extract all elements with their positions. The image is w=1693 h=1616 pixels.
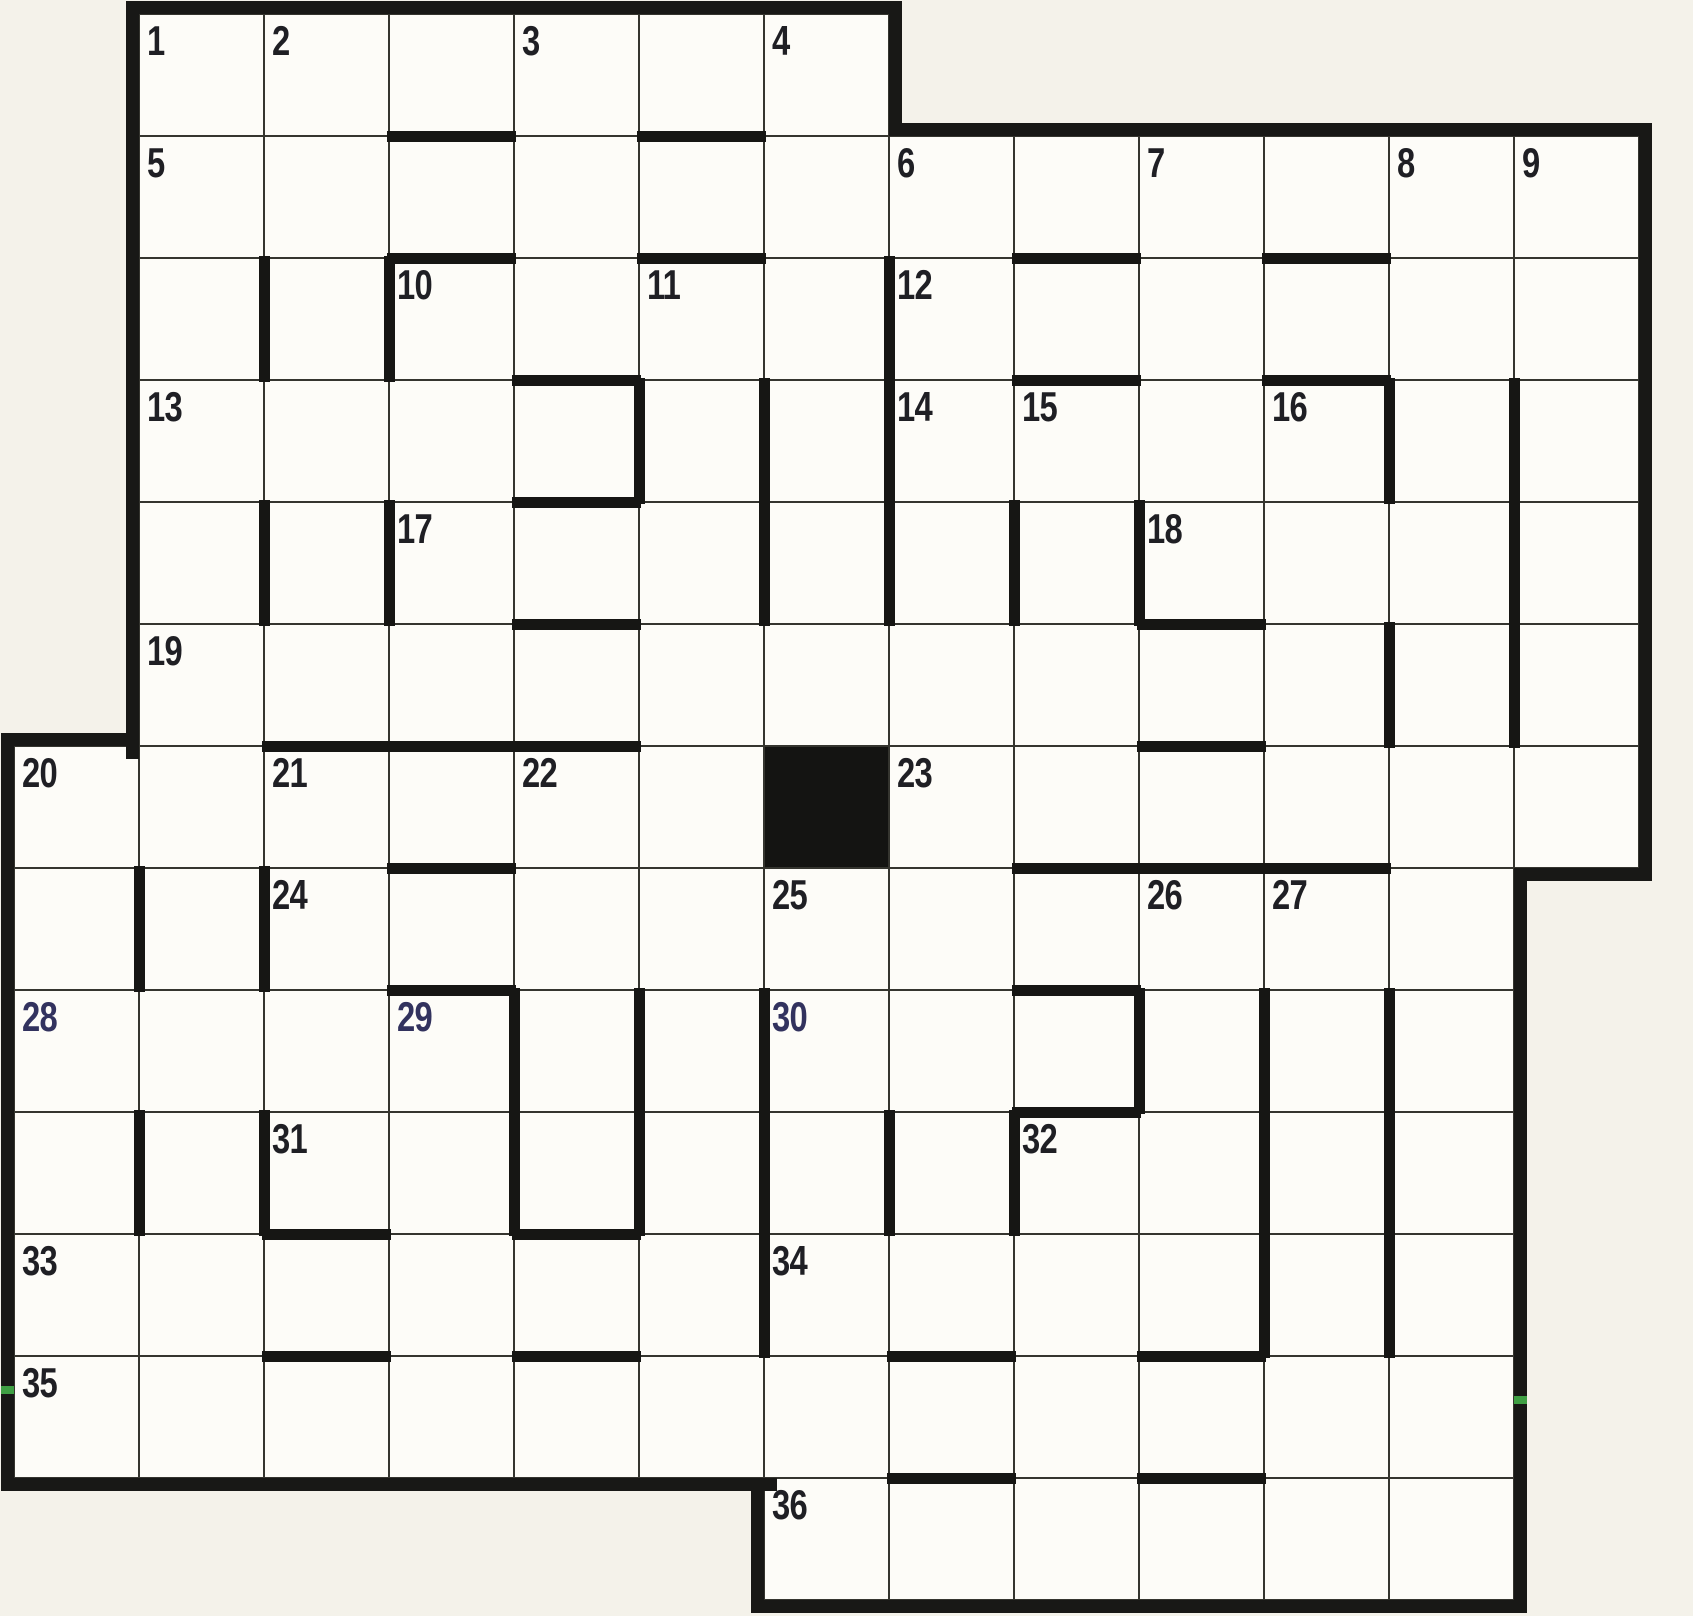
grid-cell[interactable] xyxy=(264,624,389,746)
grid-cell[interactable] xyxy=(514,990,639,1112)
word-bar-vertical xyxy=(259,1110,270,1236)
grid-cell[interactable] xyxy=(1389,380,1514,502)
grid-cell[interactable] xyxy=(1014,990,1139,1112)
cell-number: 30 xyxy=(772,996,819,1036)
outer-border-segment xyxy=(889,1,902,136)
word-bar-horizontal xyxy=(512,1229,641,1240)
word-bar-vertical xyxy=(884,1110,895,1236)
grid-cell[interactable] xyxy=(389,1112,514,1234)
grid-cell[interactable] xyxy=(1514,380,1639,502)
word-bar-vertical xyxy=(884,378,895,504)
cell-number: 24 xyxy=(272,874,319,914)
grid-cell[interactable] xyxy=(764,502,889,624)
crossword-board: 1234567891011121314151617181920212223242… xyxy=(0,0,1693,1616)
word-bar-vertical xyxy=(759,1232,770,1358)
grid-cell[interactable] xyxy=(764,380,889,502)
grid-cell[interactable] xyxy=(639,136,764,258)
grid-cell[interactable] xyxy=(764,258,889,380)
outer-border-segment xyxy=(751,1600,1527,1613)
cell-number: 23 xyxy=(897,752,944,792)
word-bar-horizontal xyxy=(1012,985,1141,996)
grid-cell[interactable] xyxy=(639,502,764,624)
grid-cell[interactable] xyxy=(764,136,889,258)
grid-cell[interactable] xyxy=(639,868,764,990)
cell-number: 31 xyxy=(272,1118,319,1158)
word-bar-horizontal xyxy=(1137,619,1266,630)
grid-cell[interactable] xyxy=(639,1234,764,1356)
grid-cell[interactable] xyxy=(1264,990,1389,1112)
scan-artifact-green xyxy=(1,1386,14,1394)
grid-cell[interactable] xyxy=(889,624,1014,746)
outer-border-segment xyxy=(1514,868,1527,1613)
word-bar-horizontal xyxy=(1137,1351,1266,1362)
outer-border-segment xyxy=(751,1478,764,1613)
cell-number: 25 xyxy=(772,874,819,914)
grid-cell[interactable] xyxy=(264,136,389,258)
grid-cell[interactable] xyxy=(889,1112,1014,1234)
grid-cell[interactable] xyxy=(514,258,639,380)
word-bar-vertical xyxy=(1259,1110,1270,1236)
word-bar-horizontal xyxy=(1137,1473,1266,1484)
grid-cell[interactable] xyxy=(514,1112,639,1234)
grid-cell[interactable] xyxy=(1264,1478,1389,1600)
grid-cell[interactable] xyxy=(1139,624,1264,746)
word-bar-vertical xyxy=(1134,988,1145,1114)
word-bar-vertical xyxy=(134,866,145,992)
word-bar-horizontal xyxy=(262,1229,391,1240)
grid-cell[interactable] xyxy=(764,1112,889,1234)
grid-cell[interactable] xyxy=(1139,990,1264,1112)
grid-cell[interactable] xyxy=(889,868,1014,990)
grid-cell[interactable] xyxy=(514,136,639,258)
cell-number: 36 xyxy=(772,1484,819,1524)
grid-cell[interactable] xyxy=(889,1478,1014,1600)
grid-cell[interactable] xyxy=(139,868,264,990)
grid-cell[interactable] xyxy=(264,258,389,380)
outer-border-segment xyxy=(1,733,139,746)
grid-cell[interactable] xyxy=(264,1234,389,1356)
cell-number: 8 xyxy=(1397,142,1444,182)
grid-cell[interactable] xyxy=(1514,746,1639,868)
cell-number: 29 xyxy=(397,996,444,1036)
grid-cell[interactable] xyxy=(764,1356,889,1478)
grid-cell[interactable] xyxy=(1389,990,1514,1112)
grid-cell[interactable] xyxy=(639,990,764,1112)
grid-cell[interactable] xyxy=(139,502,264,624)
word-bar-vertical xyxy=(1384,1110,1395,1236)
grid-cell[interactable] xyxy=(139,990,264,1112)
cell-number: 9 xyxy=(1522,142,1569,182)
grid-cell[interactable] xyxy=(1014,136,1139,258)
grid-cell[interactable] xyxy=(1014,624,1139,746)
grid-cell[interactable] xyxy=(1389,1112,1514,1234)
word-bar-vertical xyxy=(1384,622,1395,748)
grid-cell[interactable] xyxy=(1389,746,1514,868)
grid-cell-black xyxy=(764,746,889,868)
grid-cell[interactable] xyxy=(264,502,389,624)
grid-cell[interactable] xyxy=(639,624,764,746)
grid-cell[interactable] xyxy=(889,502,1014,624)
grid-cell[interactable] xyxy=(1389,1234,1514,1356)
cell-number: 32 xyxy=(1022,1118,1069,1158)
word-bar-vertical xyxy=(384,256,395,382)
word-bar-vertical xyxy=(759,988,770,1114)
word-bar-vertical xyxy=(384,500,395,626)
cell-number: 6 xyxy=(897,142,944,182)
word-bar-vertical xyxy=(884,256,895,382)
grid-cell[interactable] xyxy=(139,1356,264,1478)
grid-cell[interactable] xyxy=(639,1356,764,1478)
grid-cell[interactable] xyxy=(1389,1356,1514,1478)
word-bar-vertical xyxy=(1009,500,1020,626)
grid-cell[interactable] xyxy=(1139,746,1264,868)
word-bar-vertical xyxy=(1509,500,1520,626)
grid-cell[interactable] xyxy=(1264,502,1389,624)
cell-number: 4 xyxy=(772,20,819,60)
grid-cell[interactable] xyxy=(1264,624,1389,746)
word-bar-vertical xyxy=(1384,1232,1395,1358)
word-bar-vertical xyxy=(1259,988,1270,1114)
grid-cell[interactable] xyxy=(1264,1356,1389,1478)
grid-cell[interactable] xyxy=(389,136,514,258)
word-bar-vertical xyxy=(759,500,770,626)
grid-cell[interactable] xyxy=(264,1356,389,1478)
cell-number: 21 xyxy=(272,752,319,792)
grid-cell[interactable] xyxy=(1264,746,1389,868)
outer-border-segment xyxy=(126,1,139,759)
grid-cell[interactable] xyxy=(639,1112,764,1234)
grid-cell[interactable] xyxy=(1264,136,1389,258)
cell-number: 35 xyxy=(22,1362,69,1402)
scan-artifact-green xyxy=(1514,1396,1527,1404)
word-bar-horizontal xyxy=(887,1351,1016,1362)
word-bar-horizontal xyxy=(512,497,641,508)
cell-number: 17 xyxy=(397,508,444,548)
cell-number: 27 xyxy=(1272,874,1319,914)
grid-cell[interactable] xyxy=(1389,624,1514,746)
cell-number: 7 xyxy=(1147,142,1194,182)
grid-cell[interactable] xyxy=(1264,1234,1389,1356)
word-bar-vertical xyxy=(1509,622,1520,748)
word-bar-vertical xyxy=(759,378,770,504)
word-bar-horizontal xyxy=(262,1351,391,1362)
word-bar-vertical xyxy=(634,378,645,504)
grid-cell[interactable] xyxy=(1514,258,1639,380)
grid-cell[interactable] xyxy=(1139,1112,1264,1234)
word-bar-horizontal xyxy=(387,863,516,874)
cell-number: 3 xyxy=(522,20,569,60)
word-bar-horizontal xyxy=(387,741,516,752)
grid-cell[interactable] xyxy=(889,990,1014,1112)
grid-cell[interactable] xyxy=(514,1234,639,1356)
grid-cell[interactable] xyxy=(514,624,639,746)
grid-cell[interactable] xyxy=(139,258,264,380)
outer-border-segment xyxy=(1,1478,777,1491)
grid-cell[interactable] xyxy=(264,990,389,1112)
grid-cell[interactable] xyxy=(14,868,139,990)
word-bar-vertical xyxy=(259,500,270,626)
grid-cell[interactable] xyxy=(389,380,514,502)
grid-cell[interactable] xyxy=(514,1356,639,1478)
word-bar-vertical xyxy=(134,1110,145,1236)
grid-cell[interactable] xyxy=(1264,258,1389,380)
outer-border-segment xyxy=(1639,123,1652,881)
grid-cell[interactable] xyxy=(514,868,639,990)
grid-cell[interactable] xyxy=(1389,502,1514,624)
cell-number: 16 xyxy=(1272,386,1319,426)
grid-cell[interactable] xyxy=(764,624,889,746)
word-bar-vertical xyxy=(1384,378,1395,504)
grid-cell[interactable] xyxy=(389,624,514,746)
cell-number: 22 xyxy=(522,752,569,792)
word-bar-horizontal xyxy=(1012,863,1141,874)
grid-cell[interactable] xyxy=(389,868,514,990)
cell-number: 13 xyxy=(147,386,194,426)
cell-number: 18 xyxy=(1147,508,1194,548)
cell-number: 15 xyxy=(1022,386,1069,426)
word-bar-vertical xyxy=(509,988,520,1114)
grid-cell[interactable] xyxy=(1139,258,1264,380)
grid-cell[interactable] xyxy=(1014,1478,1139,1600)
word-bar-vertical xyxy=(634,1110,645,1236)
word-bar-horizontal xyxy=(512,1351,641,1362)
word-bar-vertical xyxy=(259,256,270,382)
word-bar-vertical xyxy=(259,866,270,992)
cell-number: 1 xyxy=(147,20,194,60)
grid-cell[interactable] xyxy=(1264,1112,1389,1234)
grid-cell[interactable] xyxy=(14,1112,139,1234)
grid-cell[interactable] xyxy=(139,1112,264,1234)
cell-number: 20 xyxy=(22,752,69,792)
grid-cell[interactable] xyxy=(1014,502,1139,624)
grid-cell[interactable] xyxy=(1389,1478,1514,1600)
cell-number: 28 xyxy=(22,996,69,1036)
outer-border-segment xyxy=(889,123,1652,136)
grid-cell[interactable] xyxy=(139,1234,264,1356)
grid-cell[interactable] xyxy=(1514,502,1639,624)
word-bar-horizontal xyxy=(387,131,516,142)
cell-number: 2 xyxy=(272,20,319,60)
grid-cell[interactable] xyxy=(639,380,764,502)
grid-cell[interactable] xyxy=(1014,258,1139,380)
grid-cell[interactable] xyxy=(1014,746,1139,868)
grid-cell[interactable] xyxy=(889,1356,1014,1478)
grid-cell[interactable] xyxy=(514,502,639,624)
cell-number: 12 xyxy=(897,264,944,304)
grid-cell[interactable] xyxy=(389,746,514,868)
word-bar-vertical xyxy=(1259,1232,1270,1358)
grid-cell[interactable] xyxy=(514,380,639,502)
word-bar-vertical xyxy=(1384,988,1395,1114)
grid-cell[interactable] xyxy=(139,746,264,868)
grid-cell[interactable] xyxy=(1014,868,1139,990)
outer-border-segment xyxy=(126,1,902,14)
cell-number: 14 xyxy=(897,386,944,426)
grid-cell[interactable] xyxy=(389,1234,514,1356)
cell-number: 33 xyxy=(22,1240,69,1280)
word-bar-vertical xyxy=(1509,378,1520,504)
word-bar-horizontal xyxy=(887,1473,1016,1484)
cell-number: 11 xyxy=(647,264,694,304)
grid-cell[interactable] xyxy=(639,746,764,868)
grid-cell[interactable] xyxy=(264,380,389,502)
grid-cell[interactable] xyxy=(389,1356,514,1478)
word-bar-vertical xyxy=(1134,500,1145,626)
cell-number: 5 xyxy=(147,142,194,182)
grid-cell[interactable] xyxy=(639,14,764,136)
grid-cell[interactable] xyxy=(1139,1478,1264,1600)
word-bar-horizontal xyxy=(637,131,766,142)
cell-number: 19 xyxy=(147,630,194,670)
outer-border-segment xyxy=(1514,868,1652,881)
word-bar-horizontal xyxy=(1137,741,1266,752)
word-bar-vertical xyxy=(509,1110,520,1236)
word-bar-horizontal xyxy=(512,375,641,386)
word-bar-horizontal xyxy=(1262,253,1391,264)
grid-cell[interactable] xyxy=(1389,258,1514,380)
grid-cell[interactable] xyxy=(1014,1356,1139,1478)
grid-cell[interactable] xyxy=(889,1234,1014,1356)
grid-cell[interactable] xyxy=(389,14,514,136)
grid-cell[interactable] xyxy=(1514,624,1639,746)
word-bar-vertical xyxy=(759,1110,770,1236)
word-bar-vertical xyxy=(884,500,895,626)
grid-cell[interactable] xyxy=(1389,868,1514,990)
word-bar-vertical xyxy=(634,988,645,1114)
grid-cell[interactable] xyxy=(1139,380,1264,502)
word-bar-vertical xyxy=(1009,1110,1020,1236)
grid-cell[interactable] xyxy=(1014,1234,1139,1356)
cell-number: 10 xyxy=(397,264,444,304)
cell-number: 34 xyxy=(772,1240,819,1280)
outer-border-segment xyxy=(1,733,14,1491)
word-bar-horizontal xyxy=(1012,253,1141,264)
cell-number: 26 xyxy=(1147,874,1194,914)
grid-cell[interactable] xyxy=(1139,1356,1264,1478)
word-bar-horizontal xyxy=(512,619,641,630)
grid-cell[interactable] xyxy=(1139,1234,1264,1356)
